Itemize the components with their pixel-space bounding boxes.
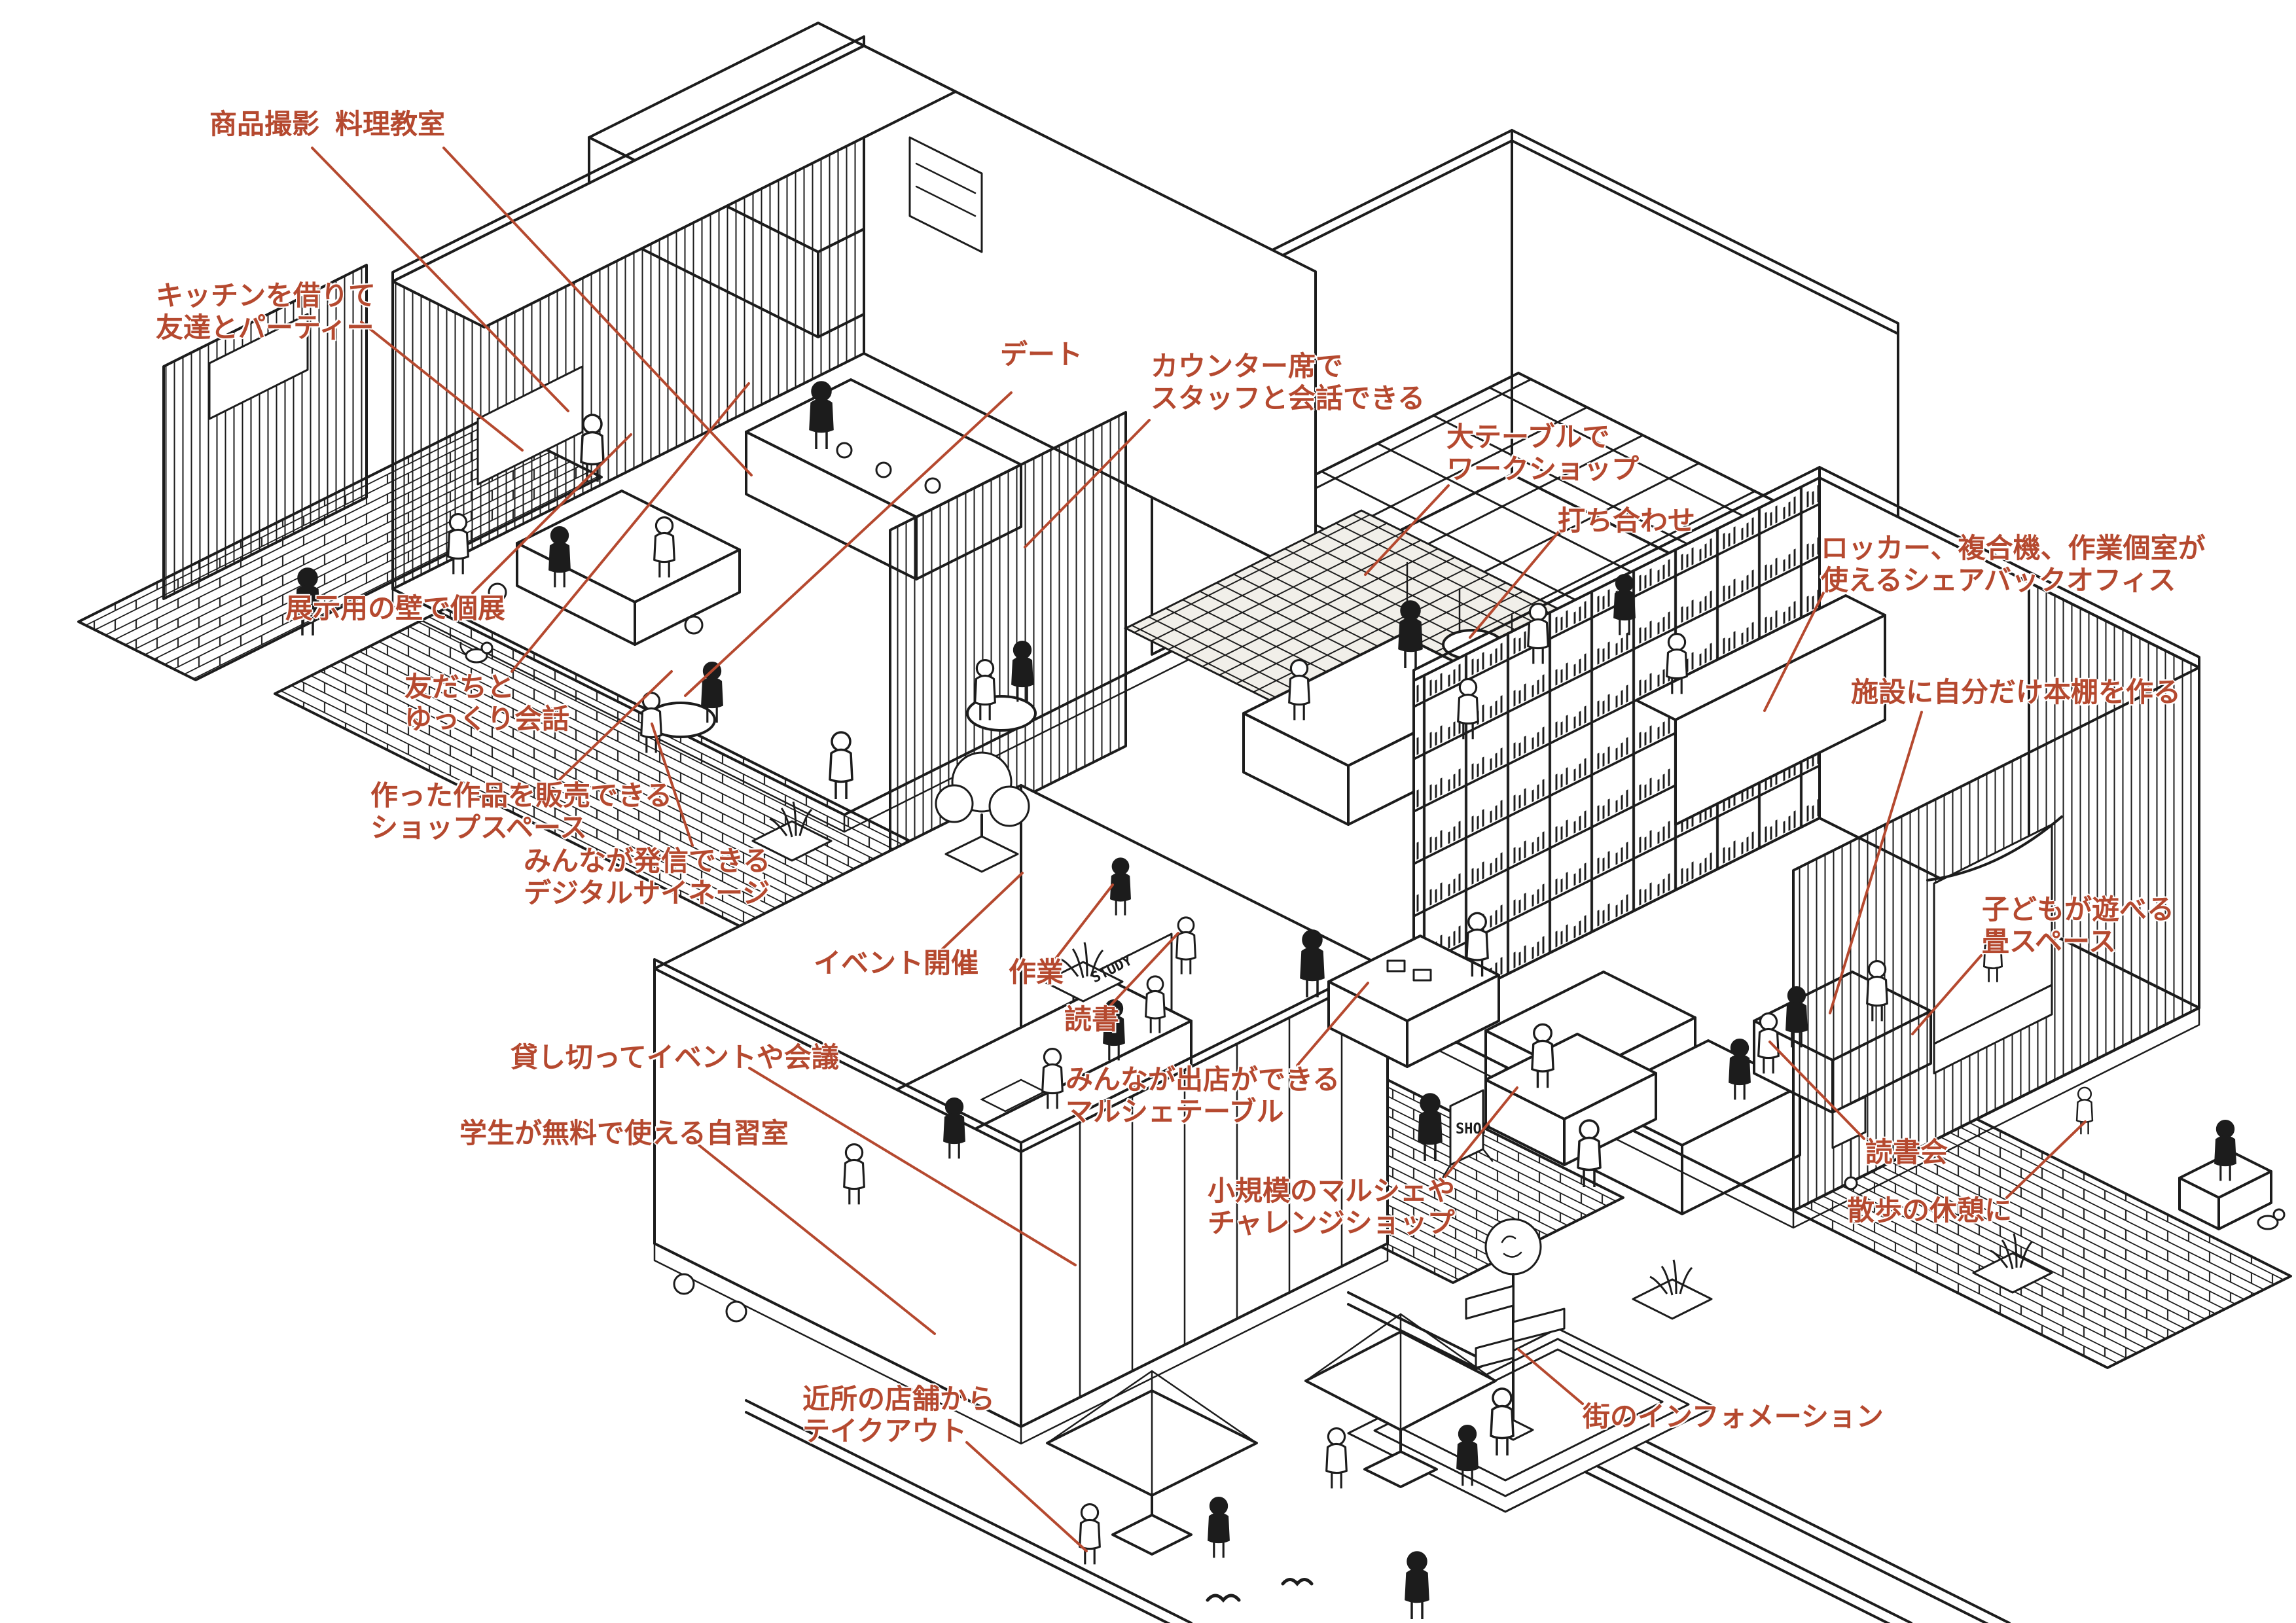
- label-takeout: 近所の店舗から テイクアウト: [802, 1383, 995, 1447]
- label-product-photography: 商品撮影: [209, 109, 319, 141]
- label-book-club: 読書会: [1865, 1137, 1948, 1169]
- label-marche-table: みんなが出店ができる マルシェテーブル: [1066, 1064, 1340, 1128]
- label-walk-rest: 散歩の休憩に: [1847, 1195, 2012, 1227]
- leader-line-big-table-workshop: [1365, 486, 1448, 575]
- leader-line-small-marche: [1445, 1088, 1517, 1177]
- label-event: イベント開催: [814, 948, 978, 980]
- leader-line-reading: [1111, 933, 1178, 1005]
- label-shop-space: 作った作品を販売できる ショップスペース: [370, 780, 672, 844]
- label-work: 作業: [1009, 957, 1064, 989]
- label-digital-signage: みんなが発信できる デジタルサイネージ: [524, 846, 770, 909]
- label-kitchen-party: キッチンを借りて 友達とパーティー: [156, 280, 376, 344]
- leader-line-town-info: [1518, 1349, 1583, 1404]
- label-share-back-office: ロッカー、複合機、作業個室が 使えるシェアバックオフィス: [1821, 533, 2206, 596]
- leader-line-book-club: [1770, 1042, 1864, 1139]
- leader-line-kitchen-party: [361, 322, 522, 450]
- leader-line-my-bookshelf: [1830, 712, 1922, 1013]
- leader-line-walk-rest: [2007, 1122, 2085, 1198]
- label-solo-exhibition: 展示用の壁で個展: [285, 593, 505, 625]
- label-chat-friends: 友だちと ゆっくり会話: [404, 671, 569, 735]
- label-big-table-workshop: 大テーブルで ワークショップ: [1446, 421, 1639, 485]
- label-town-info: 街のインフォメーション: [1583, 1401, 1884, 1433]
- leader-line-counter-seats: [1025, 420, 1149, 547]
- leader-line-takeout: [967, 1442, 1086, 1551]
- leader-line-kids-tatami: [1912, 955, 1981, 1034]
- label-my-bookshelf: 施設に自分だけ本棚を作る: [1851, 677, 2181, 709]
- leader-line-solo-exhibition: [473, 435, 631, 593]
- leader-line-work: [1055, 885, 1113, 959]
- label-date: デート: [1000, 339, 1083, 371]
- leader-line-event: [942, 873, 1022, 949]
- label-meeting: 打ち合わせ: [1558, 505, 1695, 537]
- leader-line-study-room: [699, 1145, 935, 1334]
- label-kids-tatami: 子どもが遊べる 畳スペース: [1982, 894, 2174, 957]
- leader-lines-layer: [0, 0, 2296, 1623]
- leader-line-share-back-office: [1765, 593, 1823, 711]
- label-reading: 読書: [1064, 1004, 1119, 1036]
- isometric-facility-diagram: SHOP: [0, 0, 2296, 1623]
- leader-line-chat-friends: [512, 383, 749, 671]
- leader-line-private-events: [749, 1068, 1075, 1265]
- label-counter-seats: カウンター席で スタッフと会話できる: [1151, 351, 1425, 414]
- label-cooking-class: 料理教室: [335, 109, 445, 141]
- leader-line-meeting: [1470, 531, 1559, 637]
- label-small-marche: 小規模のマルシェや チャレンジショップ: [1208, 1175, 1455, 1239]
- label-study-room: 学生が無料で使える自習室: [459, 1118, 789, 1150]
- leader-line-date: [685, 393, 1011, 696]
- label-private-events: 貸し切ってイベントや会議: [511, 1042, 839, 1074]
- leader-line-marche-table: [1297, 983, 1368, 1065]
